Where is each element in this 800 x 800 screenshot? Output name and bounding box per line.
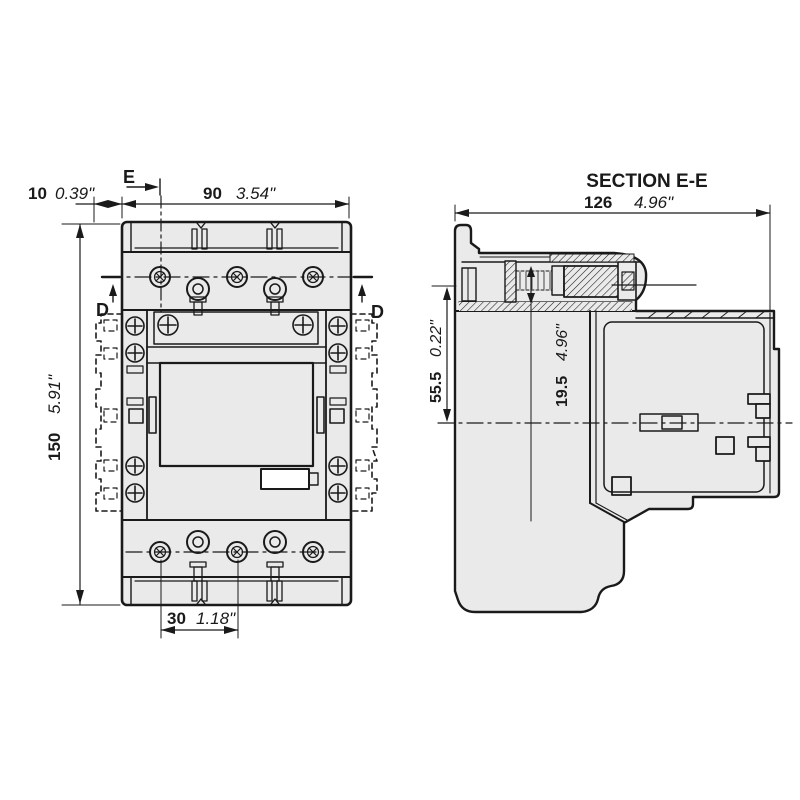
dim-travel-mm: 19.5 [554,376,571,407]
section-view: SECTION E-E [428,171,792,612]
dim-width-mm: 90 [203,184,222,203]
dim-arrow-icon [122,200,136,208]
dim-arrow-icon [756,209,770,217]
technical-drawing: E D D 10 0.39" 90 [0,0,800,800]
dim-arrow-icon [443,409,451,422]
dim-arrow-icon [443,287,451,300]
screw-icon [126,457,144,475]
dim-pole-pitch-mm: 30 [167,609,186,628]
dim-travel-inch: 4.96" [554,323,571,361]
dim-axis-height-mm: 55.5 [428,372,445,403]
dim-pole-pitch-inch: 1.18" [196,609,236,628]
screw-icon [329,484,347,502]
marker-e-label: E [123,167,135,187]
accessory-block-dashed-left [96,314,122,511]
dim-arrow-icon [455,209,469,217]
dim-side-offset-inch: 0.39" [55,184,95,203]
dim-height-inch: 5.91" [45,374,64,414]
marker-d-left-label: D [96,300,109,320]
dim-axis-height: 55.5 0.22" [428,286,456,422]
dim-axis-height-inch: 0.22" [428,319,445,357]
screw-icon [158,315,178,335]
section-marker-d-right: D [354,277,384,322]
dim-side-offset-mm: 10 [28,184,47,203]
dim-height-mm: 150 [45,433,64,461]
marker-d-right-label: D [371,302,384,322]
screw-icon [329,457,347,475]
accessory-block-dashed-right [351,314,377,511]
dimension-drawing-page: E D D 10 0.39" 90 [0,0,800,800]
screw-icon [126,484,144,502]
section-title: SECTION E-E [586,171,707,192]
dim-arrow-icon [76,224,84,238]
arrow-up-icon [109,284,117,296]
dim-arrow-icon [94,200,108,208]
screw-icon [329,317,347,335]
dim-width-inch: 3.54" [236,184,276,203]
dim-side-offset: 10 0.39" [28,184,122,222]
arrow-up-icon [358,284,366,296]
screw-icon [329,344,347,362]
screw-icon [126,317,144,335]
dim-height: 150 5.91" [45,224,120,605]
front-view: E D D 10 0.39" 90 [28,167,384,638]
dim-depth-inch: 4.96" [634,193,674,212]
dim-arrow-icon [108,200,122,208]
screw-icon [293,315,313,335]
arrow-right-icon [145,183,159,191]
screw-icon [126,344,144,362]
dim-arrow-icon [76,590,84,604]
section-marker-e: E [123,167,160,195]
dim-depth-mm: 126 [584,193,612,212]
dim-width: 90 3.54" [122,184,349,218]
dim-arrow-icon [335,200,349,208]
